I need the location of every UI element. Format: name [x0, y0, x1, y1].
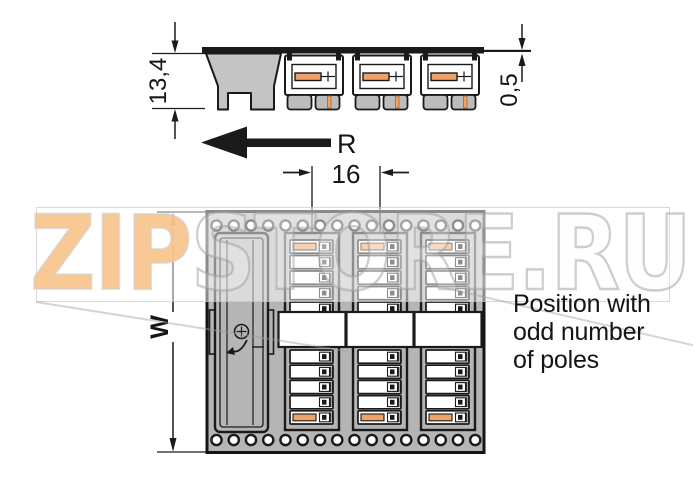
contact-bar — [295, 73, 321, 81]
side-view-module — [285, 54, 343, 110]
mounting-hole — [229, 435, 239, 445]
module-foot — [356, 95, 380, 110]
dimension-pin: 0,5 — [496, 24, 526, 107]
dimension-height: 13,4 — [145, 22, 205, 139]
side-view-module — [421, 54, 479, 110]
dimension-pin-label: 0,5 — [496, 73, 523, 106]
mounting-hole — [384, 435, 394, 445]
mounting-hole — [332, 435, 342, 445]
contact-bar — [429, 414, 452, 421]
contact-bar — [361, 414, 384, 421]
watermark-band — [36, 207, 670, 302]
solder-pin-line — [484, 50, 531, 52]
side-view-module — [353, 54, 411, 110]
mounting-hole — [280, 435, 290, 445]
mounting-hole — [315, 435, 325, 445]
mounting-hole — [470, 435, 480, 445]
reference-arrow-r: R — [201, 127, 357, 160]
mounting-hole — [298, 435, 308, 445]
contact-bar — [363, 73, 389, 81]
end-module-side — [206, 54, 281, 110]
mounting-hole — [349, 435, 359, 445]
caption-position-note: Position with odd number of poles — [513, 290, 651, 374]
caption-line: Position with — [513, 290, 651, 318]
caption-line: odd number — [513, 318, 651, 346]
mounting-hole — [367, 435, 377, 445]
module-foot — [424, 95, 448, 110]
solder-pin — [396, 96, 400, 108]
coding-window — [415, 312, 482, 347]
mounting-hole — [263, 435, 273, 445]
module-foot — [288, 95, 312, 110]
solder-pin — [464, 96, 468, 108]
dimension-pitch-label: 16 — [332, 159, 361, 189]
mounting-hole — [453, 435, 463, 445]
side-view-modules — [285, 54, 479, 110]
mounting-hole — [418, 435, 428, 445]
mounting-hole — [246, 435, 256, 445]
datasheet-drawing: 13,4 0,5 R — [0, 0, 697, 496]
direction-label: R — [337, 129, 357, 159]
caption-line: of poles — [513, 346, 651, 374]
mounting-hole — [211, 435, 221, 445]
mounting-hole — [401, 435, 411, 445]
dimension-height-label: 13,4 — [145, 58, 172, 105]
coding-window — [347, 312, 414, 347]
left-arrow-icon — [201, 127, 247, 159]
contact-bar — [431, 73, 457, 81]
mounting-hole — [436, 435, 446, 445]
solder-pin — [328, 96, 332, 108]
contact-bar — [293, 414, 316, 421]
